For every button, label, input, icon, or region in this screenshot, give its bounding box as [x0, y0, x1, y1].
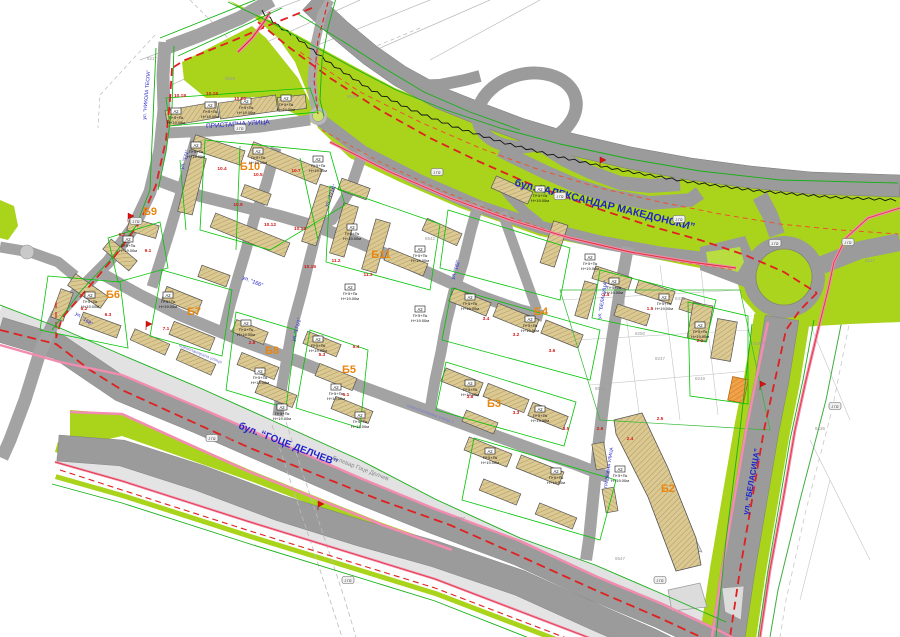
- svg-text:10.7: 10.7: [291, 168, 301, 174]
- svg-text:2.5: 2.5: [657, 416, 664, 422]
- svg-text:А2: А2: [467, 295, 473, 300]
- svg-text:Н+19.00м: Н+19.00м: [187, 154, 205, 159]
- svg-text:8247/1: 8247/1: [753, 341, 767, 346]
- svg-text:А2: А2: [193, 143, 199, 148]
- svg-text:6.2: 6.2: [81, 306, 88, 312]
- svg-text:10.5: 10.5: [253, 172, 263, 178]
- svg-text:Н+19.00м: Н+19.00м: [273, 416, 291, 421]
- svg-text:А2: А2: [165, 293, 171, 298]
- svg-text:Б2: Б2: [661, 483, 675, 495]
- svg-text:5.3: 5.3: [319, 352, 326, 358]
- svg-text:А2: А2: [661, 295, 667, 300]
- svg-text:А2: А2: [697, 323, 703, 328]
- svg-text:Б9: Б9: [143, 206, 157, 218]
- svg-text:11.3: 11.3: [363, 272, 372, 278]
- svg-text:А2: А2: [347, 285, 353, 290]
- svg-text:Ј П2: Ј П2: [556, 195, 563, 199]
- svg-text:Н+19.00м: Н+19.00м: [611, 478, 629, 483]
- svg-text:Н+19.00м: Н+19.00м: [461, 306, 479, 311]
- svg-text:Н+19.00м: Н+19.00м: [481, 460, 499, 465]
- svg-text:8247: 8247: [655, 356, 666, 361]
- svg-text:Н+19.00м: Н+19.00м: [237, 110, 255, 115]
- svg-text:8541: 8541: [325, 476, 336, 481]
- svg-text:8697: 8697: [125, 386, 136, 391]
- svg-text:Б3: Б3: [487, 398, 501, 410]
- svg-text:А2: А2: [357, 413, 363, 418]
- svg-text:8217: 8217: [147, 56, 158, 61]
- svg-text:А2: А2: [315, 157, 321, 162]
- svg-text:Н+19.00м: Н+19.00м: [581, 266, 599, 271]
- svg-text:А2: А2: [87, 293, 93, 298]
- svg-text:А2: А2: [279, 405, 285, 410]
- svg-text:3.2: 3.2: [513, 332, 520, 338]
- svg-text:Н+19.00м: Н+19.00м: [251, 380, 269, 385]
- svg-text:А2: А2: [173, 109, 179, 114]
- svg-text:А2: А2: [315, 337, 321, 342]
- svg-text:А2: А2: [207, 103, 213, 108]
- svg-text:Н+19.00м: Н+19.00м: [411, 318, 429, 323]
- svg-text:10.15: 10.15: [304, 264, 316, 270]
- svg-text:3.3: 3.3: [513, 410, 520, 416]
- svg-text:Ј П2: Ј П2: [208, 437, 215, 441]
- svg-text:Н+19.00м: Н+19.00м: [343, 236, 361, 241]
- svg-text:2.1: 2.1: [697, 338, 704, 344]
- svg-text:Ј П2: Ј П2: [675, 218, 682, 222]
- svg-text:А2: А2: [537, 407, 543, 412]
- svg-text:Ј П2: Ј П2: [132, 220, 139, 224]
- svg-text:10.20: 10.20: [234, 96, 246, 102]
- svg-text:Ј П2: Ј П2: [236, 127, 243, 131]
- svg-text:Б8: Б8: [265, 345, 279, 357]
- svg-text:10.19: 10.19: [206, 91, 218, 97]
- svg-text:А2: А2: [417, 307, 423, 312]
- svg-text:Н+19.00м: Н+19.00м: [411, 258, 429, 263]
- svg-text:Н+19.00м: Н+19.00м: [277, 107, 295, 112]
- svg-text:Б4: Б4: [534, 306, 549, 318]
- svg-text:2.4: 2.4: [627, 436, 634, 442]
- svg-text:8250: 8250: [635, 331, 646, 336]
- svg-text:9.1: 9.1: [145, 248, 152, 254]
- svg-text:А2: А2: [587, 255, 593, 260]
- svg-text:А2: А2: [333, 385, 339, 390]
- svg-text:1.5: 1.5: [647, 306, 654, 312]
- svg-text:Ј П2: Ј П2: [344, 579, 351, 583]
- svg-text:Н+19.00м: Н+19.00м: [167, 120, 185, 125]
- svg-text:Н+19.00м: Н+19.00м: [309, 168, 327, 173]
- svg-text:1.4: 1.4: [603, 292, 610, 298]
- svg-text:3.6: 3.6: [549, 348, 556, 354]
- svg-text:А2: А2: [255, 149, 261, 154]
- svg-text:8436: 8436: [815, 426, 826, 431]
- svg-text:Н+19.00м: Н+19.00м: [547, 480, 565, 485]
- svg-text:8547: 8547: [455, 516, 466, 521]
- svg-text:А2: А2: [527, 317, 533, 322]
- svg-text:А2: А2: [125, 237, 131, 242]
- svg-text:10.18: 10.18: [174, 93, 186, 99]
- svg-text:Ј П2: Ј П2: [656, 579, 663, 583]
- svg-text:Ј П2: Ј П2: [844, 241, 851, 245]
- svg-text:7.1: 7.1: [163, 326, 170, 332]
- svg-text:Н+19.00м: Н+19.00м: [237, 332, 255, 337]
- svg-text:А2: А2: [283, 96, 289, 101]
- svg-text:5.1: 5.1: [343, 392, 350, 398]
- svg-text:10.9: 10.9: [233, 202, 243, 208]
- svg-text:3.8: 3.8: [467, 394, 474, 400]
- svg-text:Н+19.00м: Н+19.00м: [655, 306, 673, 311]
- svg-text:А2: А2: [257, 369, 263, 374]
- svg-text:1370: 1370: [535, 191, 546, 196]
- svg-text:Ј П2: Ј П2: [831, 405, 838, 409]
- svg-text:10.4: 10.4: [217, 166, 227, 172]
- svg-text:Н+19.00м: Н+19.00м: [351, 424, 369, 429]
- svg-text:10.13: 10.13: [294, 226, 306, 232]
- svg-text:8248: 8248: [695, 376, 706, 381]
- svg-text:Б6: Б6: [106, 289, 120, 301]
- svg-text:Н+19.00м: Н+19.00м: [341, 296, 359, 301]
- svg-text:9.2: 9.2: [119, 232, 126, 238]
- svg-text:6.3: 6.3: [105, 312, 112, 318]
- svg-text:А2: А2: [553, 469, 559, 474]
- svg-text:2.6: 2.6: [597, 426, 604, 432]
- svg-text:Ј П2: Ј П2: [433, 171, 440, 175]
- svg-text:8529: 8529: [225, 76, 236, 81]
- svg-text:Н+19.00м: Н+19.00м: [531, 198, 549, 203]
- svg-text:8436: 8436: [675, 296, 686, 301]
- svg-text:8217: 8217: [865, 258, 876, 263]
- svg-text:10.12: 10.12: [264, 222, 276, 228]
- svg-text:А2: А2: [611, 279, 617, 284]
- svg-text:11.2: 11.2: [331, 258, 340, 264]
- svg-text:Н+19.00м: Н+19.00м: [521, 328, 539, 333]
- svg-text:А2: А2: [467, 381, 473, 386]
- svg-text:А2: А2: [349, 225, 355, 230]
- svg-text:2.8: 2.8: [249, 340, 256, 346]
- svg-text:3.5: 3.5: [563, 426, 570, 432]
- svg-text:А2: А2: [417, 247, 423, 252]
- svg-text:А2: А2: [617, 467, 623, 472]
- svg-text:А2: А2: [243, 321, 249, 326]
- svg-text:Н+19.00м: Н+19.00м: [119, 248, 137, 253]
- svg-text:Б11: Б11: [371, 249, 391, 261]
- svg-text:Н+19.00м: Н+19.00м: [531, 418, 549, 423]
- svg-text:Н+19.00м: Н+19.00м: [159, 304, 177, 309]
- svg-text:8545: 8545: [595, 386, 606, 391]
- svg-text:8529: 8529: [347, 94, 358, 99]
- svg-text:5.4: 5.4: [353, 344, 360, 350]
- svg-text:6547: 6547: [615, 556, 626, 561]
- svg-text:8693: 8693: [225, 436, 236, 441]
- svg-text:Н+19.00м: Н+19.00м: [249, 160, 267, 165]
- svg-text:А2: А2: [487, 449, 493, 454]
- svg-text:3.4: 3.4: [483, 316, 490, 322]
- svg-text:Н+19.00м: Н+19.00м: [201, 114, 219, 119]
- svg-text:8542: 8542: [425, 236, 436, 241]
- svg-text:Ј П2: Ј П2: [771, 242, 778, 246]
- svg-text:Б7: Б7: [187, 306, 201, 318]
- svg-text:Б5: Б5: [342, 364, 356, 376]
